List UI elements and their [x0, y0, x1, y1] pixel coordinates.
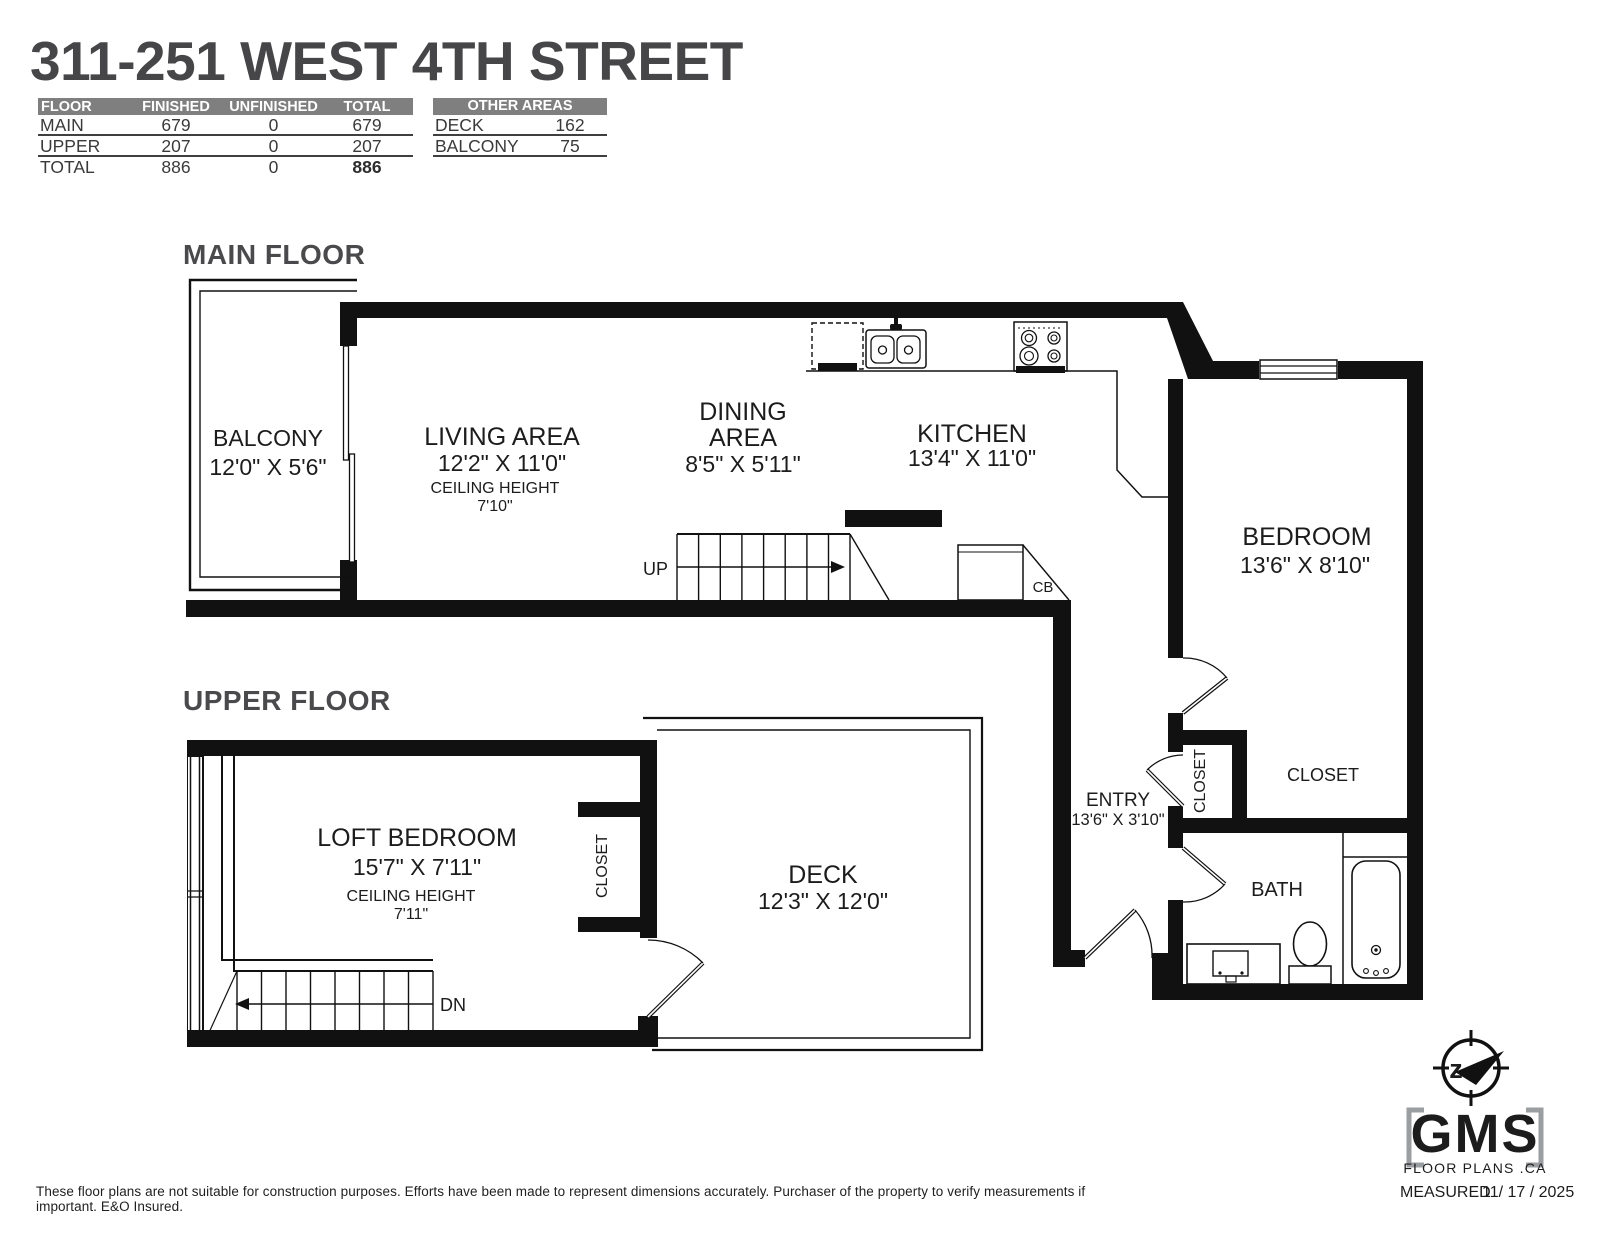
floor-plan-page: 311-251 WEST 4TH STREET FLOOR FINISHED U…	[0, 0, 1600, 1236]
stove-icon	[1014, 322, 1067, 373]
loft-ceiling-label: CEILING HEIGHT	[347, 888, 476, 905]
living-ceiling-value: 7'10"	[477, 498, 512, 515]
living-ceiling-label: CEILING HEIGHT	[431, 480, 560, 497]
bedroom-closet-label: CLOSET	[1287, 765, 1359, 785]
stairs-down-label: DN	[440, 995, 466, 1015]
main-floor-heading: MAIN FLOOR	[183, 239, 365, 270]
compass-letter: z	[1449, 1054, 1463, 1084]
upper-window-icon	[188, 757, 202, 1030]
bath-label: BATH	[1251, 879, 1303, 901]
logo-brand: GMS	[1410, 1104, 1539, 1164]
upper-floor-heading: UPPER FLOOR	[183, 685, 391, 716]
deck-dims: 12'3" X 12'0"	[758, 888, 888, 914]
vanity-sink-icon	[1187, 944, 1280, 984]
dishwasher-icon	[812, 323, 863, 371]
dining-area-dims: 8'5" X 5'11"	[685, 451, 800, 477]
living-area-label: LIVING AREA	[424, 423, 580, 451]
disclaimer-text: These floor plans are not suitable for c…	[36, 1184, 1096, 1214]
floor-plan-drawing: MAIN FLOOR UPPER FLOOR	[0, 0, 1600, 1236]
bedroom-window-icon	[1259, 357, 1338, 381]
loft-bedroom-label: LOFT BEDROOM	[317, 824, 517, 852]
bathtub-icon	[1343, 833, 1407, 984]
dining-area-label-1: DINING	[699, 398, 787, 426]
bedroom-door-icon	[1183, 658, 1227, 713]
dining-area-label-2: AREA	[709, 424, 777, 452]
sink-icon	[866, 318, 926, 368]
upper-closet-label: CLOSET	[594, 834, 611, 898]
balcony-label: BALCONY	[213, 425, 323, 451]
kitchen-label: KITCHEN	[917, 420, 1027, 448]
deck-door-icon	[648, 940, 703, 1017]
toilet-icon	[1289, 922, 1331, 984]
living-area-dims: 12'2" X 11'0"	[438, 450, 566, 476]
loft-bedroom-dims: 15'7" X 7'11"	[353, 854, 481, 880]
stairs-main	[677, 534, 889, 600]
entry-closet-door-icon	[1147, 755, 1183, 806]
logo-brand-sub: FLOOR PLANS .CA	[1403, 1160, 1546, 1176]
deck-label: DECK	[788, 861, 858, 889]
balcony-dims: 12'0" X 5'6"	[209, 454, 326, 480]
bedroom-label: BEDROOM	[1242, 523, 1371, 551]
gms-logo: z GMS FLOOR PLANS .CA MEASURED 11/ 17 / …	[1400, 1030, 1574, 1201]
sliding-door-icon	[344, 346, 355, 562]
entry-label: ENTRY	[1086, 790, 1150, 811]
entry-door-icon	[1085, 910, 1152, 958]
compass-icon: z	[1433, 1030, 1509, 1106]
loft-ceiling-value: 7'11"	[394, 906, 428, 923]
stairs-up-label: UP	[643, 559, 668, 579]
entry-dims: 13'6" X 3'10"	[1071, 811, 1164, 829]
cb-label: CB	[1033, 579, 1054, 596]
bedroom-dims: 13'6" X 8'10"	[1240, 552, 1370, 578]
bath-door-icon	[1183, 848, 1225, 902]
measured-label: MEASURED	[1400, 1184, 1491, 1201]
kitchen-dims: 13'4" X 11'0"	[908, 445, 1036, 471]
measured-date: 11/ 17 / 2025	[1482, 1184, 1574, 1201]
entry-closet-label: CLOSET	[1192, 749, 1209, 813]
